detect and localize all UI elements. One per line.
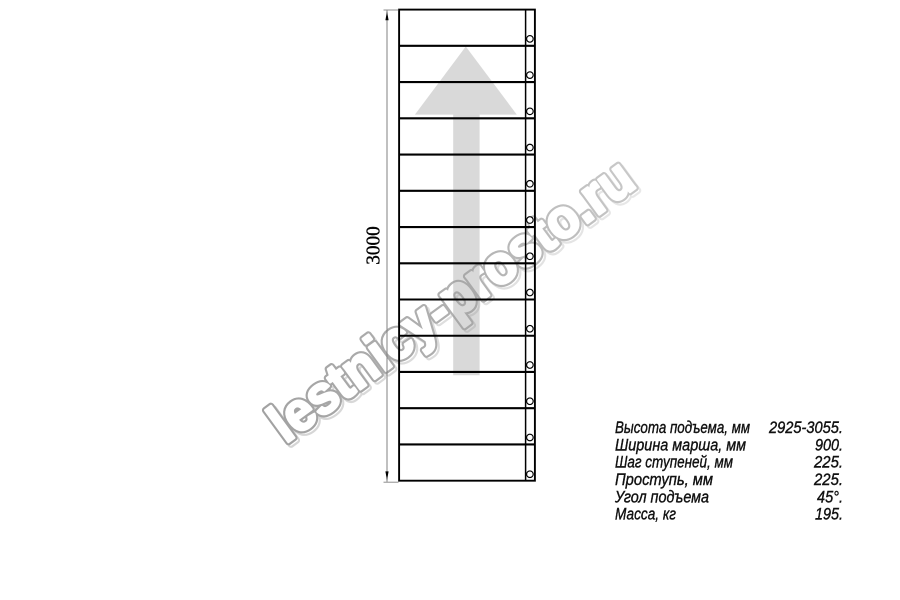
svg-text:Угол подъема: Угол подъема: [614, 487, 709, 506]
svg-text:225.: 225.: [813, 470, 843, 489]
svg-text:225.: 225.: [813, 453, 843, 472]
svg-text:Проступь, мм: Проступь, мм: [615, 470, 713, 489]
svg-text:Шаг ступеней, мм: Шаг ступеней, мм: [615, 453, 733, 472]
svg-text:2925-3055.: 2925-3055.: [768, 418, 843, 437]
svg-text:Высота подъема, мм: Высота подъема, мм: [615, 418, 750, 437]
svg-text:3000: 3000: [364, 226, 385, 265]
svg-text:Ширина марша, мм: Ширина марша, мм: [615, 435, 746, 454]
svg-text:900.: 900.: [815, 435, 843, 454]
svg-text:Масса, кг: Масса, кг: [615, 505, 676, 524]
svg-text:195.: 195.: [815, 505, 843, 524]
svg-text:45°.: 45°.: [817, 487, 843, 506]
